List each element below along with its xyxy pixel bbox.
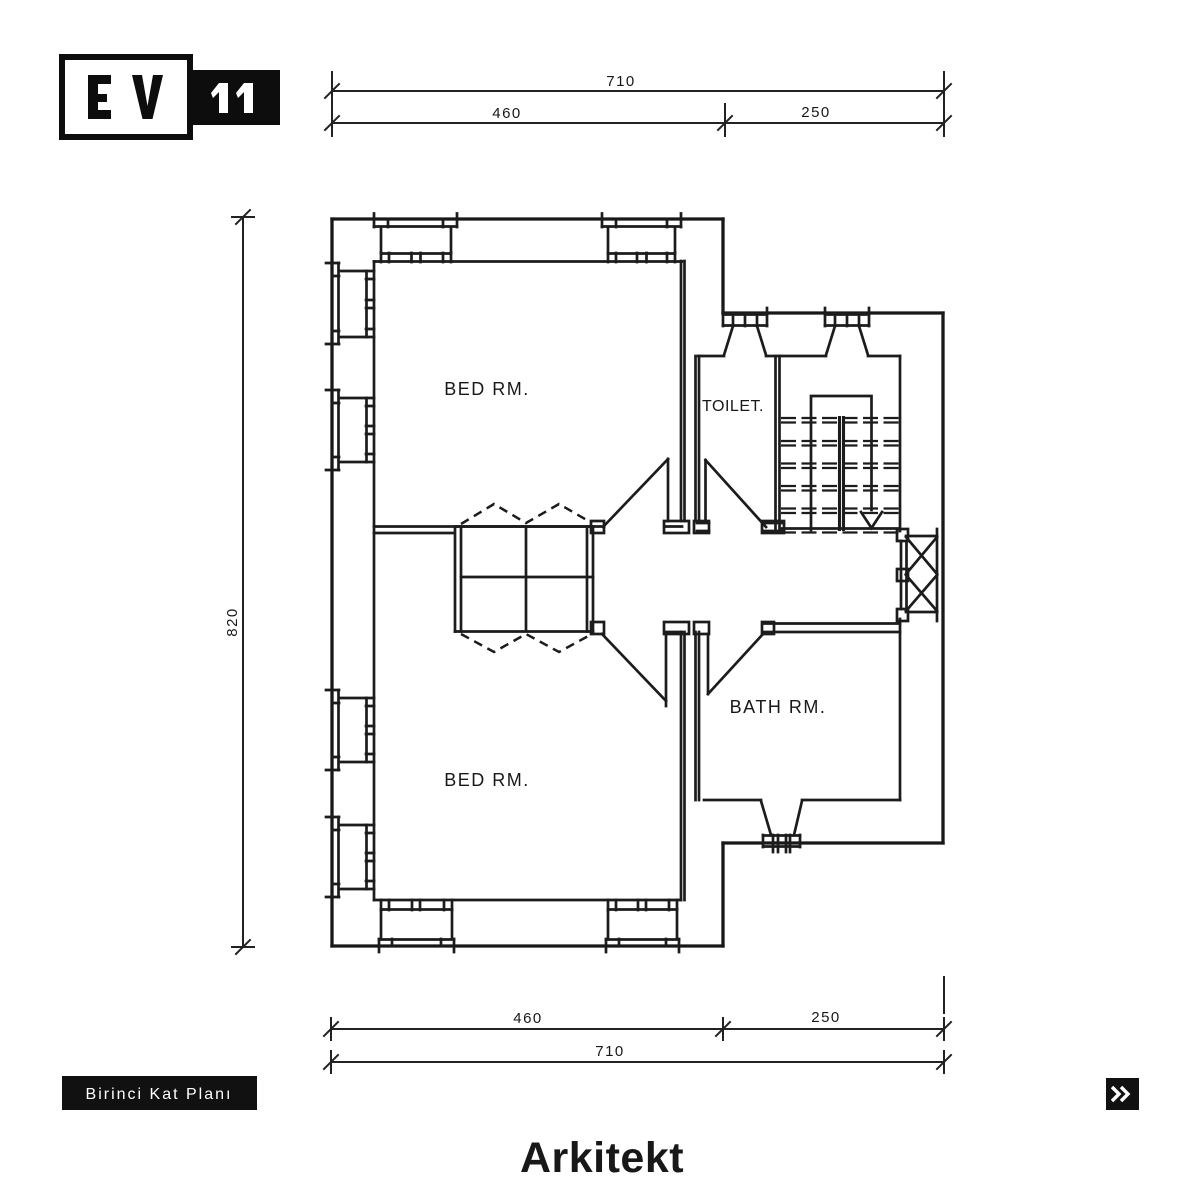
svg-text:710: 710	[595, 1043, 625, 1060]
svg-text:TOILET.: TOILET.	[702, 398, 764, 415]
svg-text:460: 460	[492, 105, 522, 122]
svg-text:710: 710	[606, 73, 636, 90]
svg-text:250: 250	[801, 104, 831, 121]
svg-text:Birinci Kat Planı: Birinci Kat Planı	[86, 1086, 233, 1103]
svg-text:Arkitekt: Arkitekt	[520, 1134, 684, 1182]
svg-text:BED RM.: BED RM.	[444, 379, 530, 399]
svg-text:460: 460	[513, 1010, 543, 1027]
svg-text:BED RM.: BED RM.	[444, 770, 530, 790]
svg-text:250: 250	[811, 1009, 841, 1026]
svg-text:BATH RM.: BATH RM.	[730, 697, 827, 717]
svg-text:820: 820	[224, 607, 241, 637]
